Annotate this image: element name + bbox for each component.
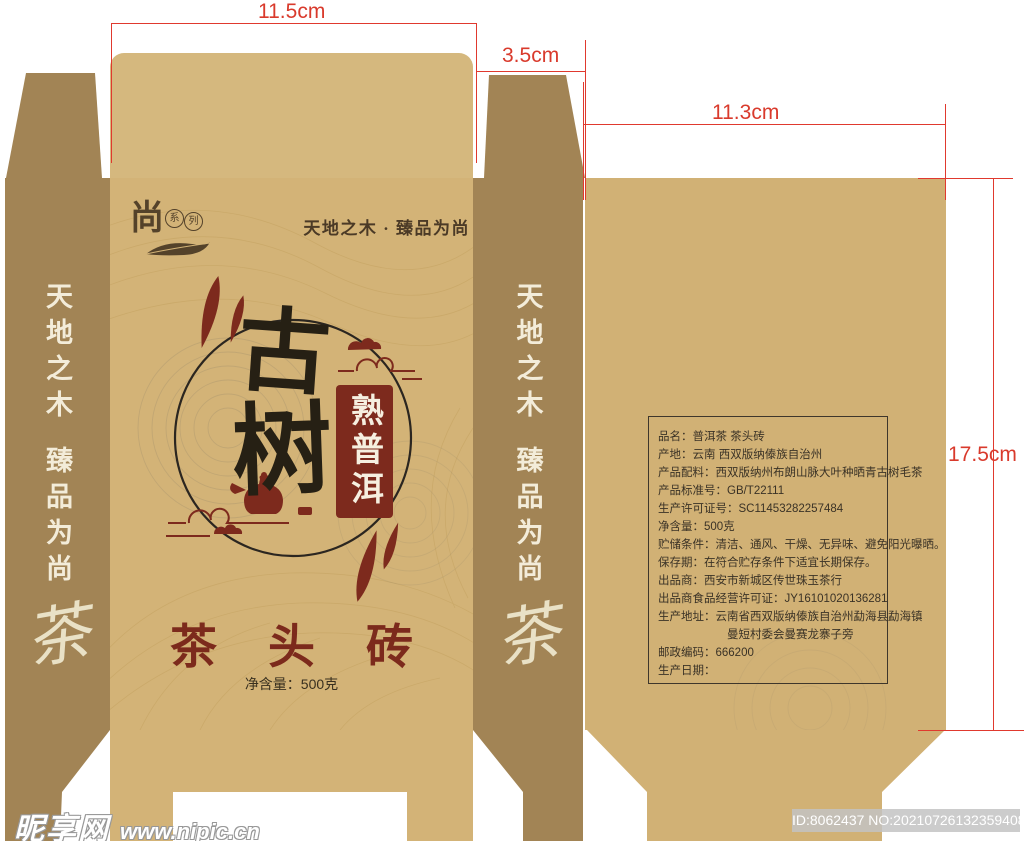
product-name-title: 茶 头 砖 xyxy=(110,608,473,677)
info-row: 产品标准号：GB/T22111 xyxy=(658,482,878,500)
image-id-watermark: ID:8062437 NO:20210726132359408100 xyxy=(792,809,1020,832)
front-panel: 尚 系 列 天地之木 · 臻品为尚 古 树 熟普洱 茶 头 砖 净含量：500克 xyxy=(110,178,473,730)
product-info-table: 品名：普洱茶 茶头砖产地：云南 西双版纳傣族自治州产品配料：西双版纳州布朗山脉大… xyxy=(648,416,888,684)
info-row: 出品商食品经营许可证：JY16101020136281 xyxy=(658,590,878,608)
info-row: 产品配料：西双版纳州布朗山脉大叶种晒青古树毛茶 xyxy=(658,464,878,482)
site-name-watermark: 昵享网 xyxy=(14,804,110,841)
left-side-panel: 天地之木 臻品为尚 茶 xyxy=(5,178,110,730)
brand-logo-char: 尚 xyxy=(130,202,164,236)
side-slogan-line2: 臻品为尚 xyxy=(509,446,548,590)
top-tuck-lid-flap xyxy=(110,53,473,179)
info-row: 邮政编码：666200 xyxy=(658,644,878,662)
bottom-middle-flap xyxy=(473,730,583,841)
info-row: 曼短村委会曼赛龙寨子旁 xyxy=(658,626,878,644)
packaging-dieline-canvas: 天地之木 臻品为尚 茶 xyxy=(0,0,1024,841)
info-row: 生产许可证号：SC11453282257484 xyxy=(658,500,878,518)
info-row: 品名：普洱茶 茶头砖 xyxy=(658,428,878,446)
info-row: 生产地址：云南省西双版纳傣族自治州勐海县勐海镇 xyxy=(658,608,878,626)
title-char-gu: 古 xyxy=(235,303,333,401)
cloud-icon-top xyxy=(338,338,422,379)
ripe-puer-ribbon: 熟普洱 xyxy=(336,385,393,518)
dim-line-back-width xyxy=(583,124,945,125)
dim-label-back-width: 11.3cm xyxy=(712,102,779,124)
dim-tick xyxy=(918,730,1024,731)
dim-line-front-width xyxy=(111,23,476,24)
dim-tick xyxy=(111,23,112,163)
tea-calligraphy-char: 茶 xyxy=(490,597,565,677)
logo-leaf-icon xyxy=(144,238,214,258)
dim-line-side-width xyxy=(476,71,586,72)
middle-side-panel: 天地之木 臻品为尚 茶 xyxy=(473,178,583,730)
dim-tick xyxy=(583,82,584,200)
info-row: 生产日期： xyxy=(658,662,878,680)
info-row: 净含量：500克 xyxy=(658,518,878,536)
dim-tick xyxy=(918,178,1013,179)
info-row: 贮储条件：清洁、通风、干燥、无异味、避免阳光曝晒。 xyxy=(658,536,878,554)
top-middle-side-flap xyxy=(483,75,585,178)
series-char-2: 列 xyxy=(184,212,203,231)
brand-logo: 尚 系 列 xyxy=(130,202,220,250)
title-char-shu: 树 xyxy=(230,398,333,501)
site-watermark: 昵享网 www.nipic.cn xyxy=(14,804,260,841)
info-row: 保存期：在符合贮存条件下适宜长期保存。 xyxy=(658,554,878,572)
dim-label-side-width: 3.5cm xyxy=(502,45,559,67)
dim-label-panel-height: 17.5cm xyxy=(948,444,1017,466)
brand-tagline: 天地之木 · 臻品为尚 xyxy=(260,214,470,239)
back-panel: 品名：普洱茶 茶头砖产地：云南 西双版纳傣族自治州产品配料：西双版纳州布朗山脉大… xyxy=(585,178,946,730)
dim-tick xyxy=(945,104,946,200)
ripe-puer-label: 熟普洱 xyxy=(341,393,389,510)
info-row: 产地：云南 西双版纳傣族自治州 xyxy=(658,446,878,464)
top-left-side-flap xyxy=(0,73,102,178)
dim-tick xyxy=(585,40,586,200)
site-url-watermark: www.nipic.cn xyxy=(120,819,260,841)
net-weight-label: 净含量：500克 xyxy=(110,674,473,694)
info-row: 出品商：西安市新城区传世珠玉茶行 xyxy=(658,572,878,590)
side-slogan-line1: 天地之木 xyxy=(509,282,548,426)
dim-tick xyxy=(476,23,477,163)
dim-line-panel-height xyxy=(993,178,994,730)
dim-label-front-width: 11.5cm xyxy=(258,1,325,23)
side-slogan-line1: 天地之木 xyxy=(38,282,77,426)
tea-calligraphy-char: 茶 xyxy=(20,597,95,677)
side-slogan-line2: 臻品为尚 xyxy=(38,446,77,590)
series-char-1: 系 xyxy=(165,209,184,228)
